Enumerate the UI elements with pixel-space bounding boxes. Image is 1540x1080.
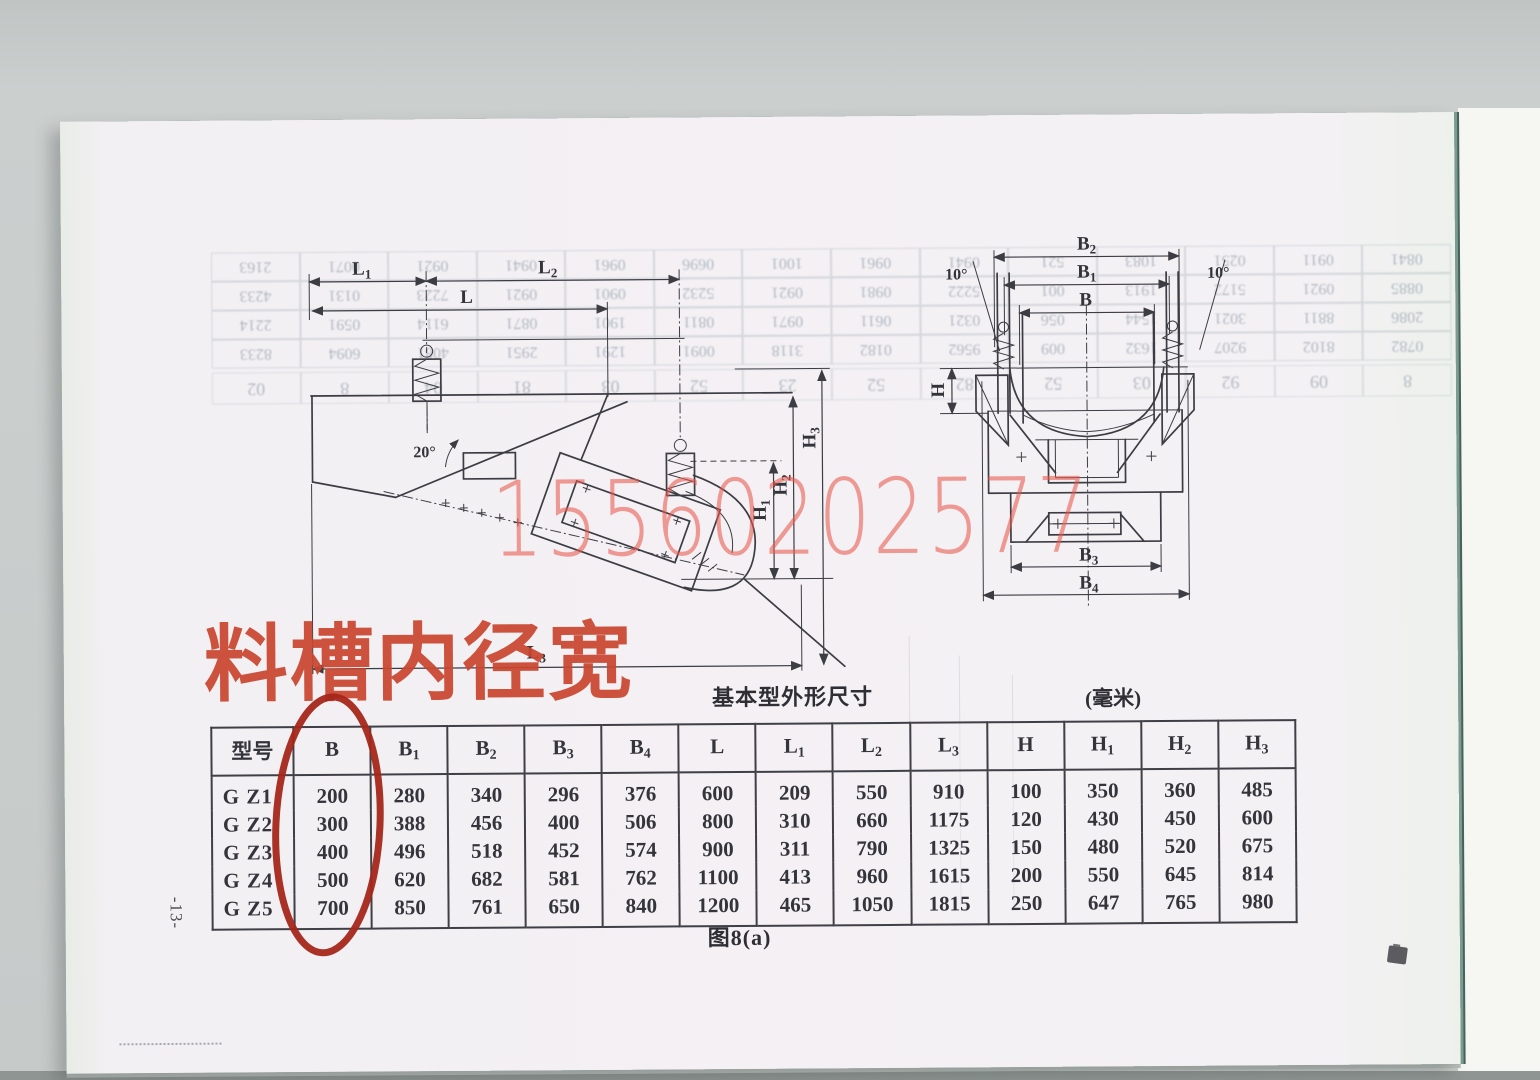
dim-label-b: B — [1079, 290, 1092, 311]
value-cell: 340 — [448, 774, 525, 810]
value-cell: 647 — [1065, 888, 1142, 924]
column-header: B4 — [602, 724, 679, 773]
value-cell: 120 — [987, 805, 1064, 834]
value-cell: 360 — [1141, 769, 1218, 805]
value-cell: 465 — [757, 890, 834, 926]
value-cell: 1325 — [911, 833, 988, 862]
value-cell: 200 — [988, 861, 1065, 890]
dim-label-b1: B1 — [1077, 262, 1096, 285]
column-header: B3 — [524, 725, 601, 774]
ink-stamp — [1387, 945, 1408, 964]
value-cell: 400 — [525, 808, 602, 837]
value-cell: 250 — [988, 889, 1065, 925]
column-header: B2 — [447, 726, 524, 775]
value-cell: 550 — [833, 771, 910, 807]
dim-label-h: H — [928, 383, 949, 398]
value-cell: 520 — [1142, 832, 1219, 861]
value-cell: 430 — [1064, 804, 1141, 833]
print-smudge — [119, 1043, 221, 1046]
value-cell: 100 — [987, 770, 1064, 806]
column-header: H — [987, 722, 1064, 771]
value-cell: 675 — [1219, 831, 1296, 860]
bleed-cell: 8 — [1363, 364, 1452, 397]
value-cell: 574 — [602, 835, 679, 864]
value-cell: 1200 — [680, 891, 757, 927]
table-unit: (毫米) — [1085, 686, 1141, 712]
dim-label-l1: L1 — [352, 259, 371, 282]
value-cell: 518 — [448, 837, 525, 866]
table-title: 基本型外形尺寸 — [712, 684, 873, 712]
value-cell: 480 — [1065, 832, 1142, 861]
value-cell: 814 — [1219, 859, 1296, 888]
angle-label-20: 20° — [413, 444, 436, 461]
value-cell: 150 — [988, 833, 1065, 862]
value-cell: 800 — [679, 807, 756, 836]
value-cell: 762 — [602, 863, 679, 892]
background-right — [1458, 108, 1540, 1080]
value-cell: 1100 — [680, 863, 757, 892]
dim-label-h3: H3 — [799, 427, 822, 449]
angle-label-10-left: 10° — [945, 266, 968, 283]
spring-icon — [993, 322, 1013, 369]
value-cell: 209 — [756, 771, 833, 807]
value-cell: 413 — [757, 862, 834, 891]
value-cell: 485 — [1218, 768, 1295, 804]
angle-label-10-right: 10° — [1207, 265, 1230, 282]
bleed-cell: 8102 — [1274, 332, 1363, 362]
value-cell: 900 — [679, 835, 756, 864]
value-cell: 1050 — [834, 890, 911, 926]
column-header: L3 — [910, 722, 987, 771]
value-cell: 452 — [525, 836, 602, 865]
bleed-cell: 2086 — [1363, 302, 1452, 332]
bleed-cell: 0885 — [1363, 273, 1452, 303]
value-cell: 600 — [1219, 803, 1296, 832]
value-cell: 660 — [833, 806, 910, 835]
value-cell: 456 — [448, 809, 525, 838]
bleed-cell: 8811 — [1274, 303, 1363, 333]
value-cell: 650 — [526, 892, 603, 928]
bleed-cell: 8233 — [212, 339, 301, 369]
bleed-cell: 4233 — [211, 281, 300, 311]
value-cell: 1615 — [911, 861, 988, 890]
value-cell: 376 — [602, 772, 679, 808]
dim-label-b2: B2 — [1077, 234, 1096, 257]
value-cell: 840 — [603, 891, 680, 927]
scan-background: 0782810292071632009956201823118009112912… — [0, 0, 1540, 1080]
red-circle-annotation — [254, 679, 416, 980]
column-header: H1 — [1064, 721, 1141, 770]
watermark-phone: 15560202577 — [490, 459, 1091, 578]
value-cell: 761 — [449, 893, 526, 929]
column-header: L2 — [833, 723, 910, 772]
value-cell: 790 — [833, 834, 910, 863]
bleed-cell: 09 — [1275, 365, 1364, 398]
bleed-cell: 0782 — [1363, 331, 1452, 361]
value-cell: 600 — [679, 772, 756, 808]
bleed-cell: 02 — [212, 372, 301, 405]
value-cell: 765 — [1142, 888, 1219, 924]
document-page: 0782810292071632009956201823118009112912… — [60, 112, 1461, 1074]
value-cell: 296 — [525, 773, 602, 809]
dim-label-l: L — [460, 287, 473, 308]
value-cell: 506 — [602, 807, 679, 836]
spring-icon — [413, 345, 442, 430]
bleed-cell: 0921 — [1274, 274, 1363, 304]
column-header: L1 — [756, 723, 833, 772]
value-cell: 645 — [1142, 860, 1219, 889]
value-cell: 350 — [1064, 769, 1141, 805]
column-header: L — [679, 724, 756, 773]
value-cell: 450 — [1142, 804, 1219, 833]
value-cell: 311 — [756, 834, 833, 863]
column-header: H2 — [1141, 721, 1218, 770]
value-cell: 581 — [525, 864, 602, 893]
value-cell: 550 — [1065, 860, 1142, 889]
value-cell: 980 — [1219, 887, 1296, 923]
bleed-cell: 2214 — [211, 310, 300, 340]
figure-caption: 图8(a) — [708, 925, 772, 952]
value-cell: 682 — [448, 865, 525, 894]
bleed-cell: 2163 — [211, 252, 300, 282]
column-header: H3 — [1218, 720, 1296, 769]
bleed-cell: 0841 — [1362, 244, 1451, 274]
value-cell: 1815 — [911, 889, 988, 925]
value-cell: 1175 — [910, 805, 987, 834]
value-cell: 960 — [834, 862, 911, 891]
page-number: -13- — [166, 897, 186, 929]
bleed-cell: 0911 — [1274, 245, 1363, 275]
value-cell: 910 — [910, 770, 987, 806]
value-cell: 310 — [756, 806, 833, 835]
dim-label-l2: L2 — [538, 257, 557, 280]
